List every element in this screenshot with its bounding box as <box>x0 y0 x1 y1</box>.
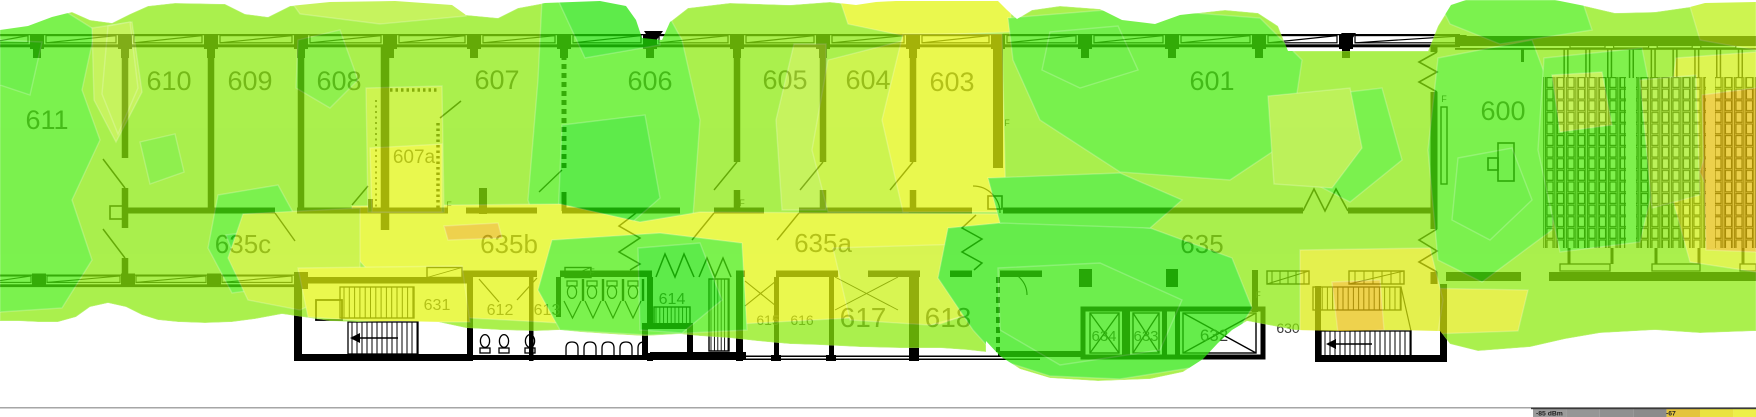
svg-text:-85 dBm: -85 dBm <box>1536 411 1563 417</box>
svg-text:-67: -67 <box>1666 411 1676 417</box>
